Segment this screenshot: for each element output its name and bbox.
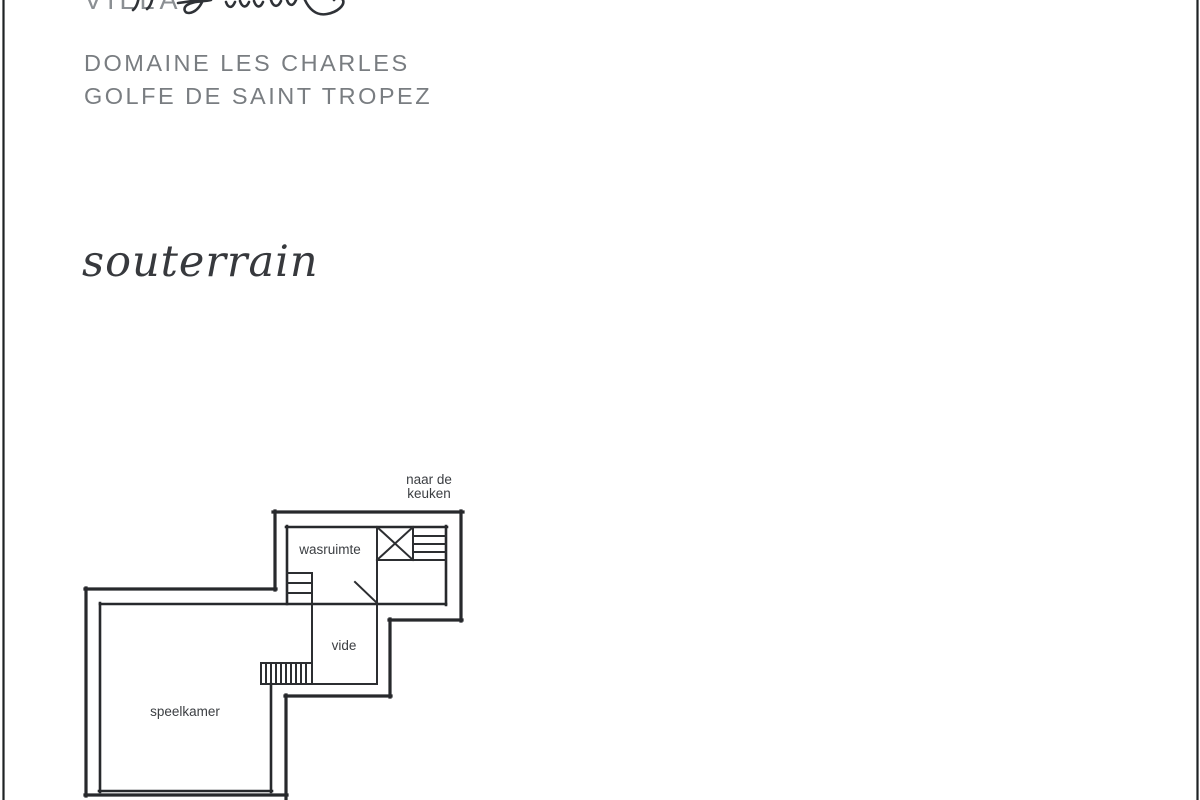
header: VILLA DOMAINE LES CHARLES GOLFE DE SAINT…	[84, 0, 432, 109]
floor-plan: naar de keuken wasruimte vide speelkamer	[85, 472, 463, 800]
floor-title: souterrain	[82, 237, 319, 287]
subtitle-domaine: DOMAINE LES CHARLES	[84, 50, 410, 76]
stair-playroom	[261, 663, 312, 684]
page-borders	[4, 0, 1198, 800]
script-stroke	[287, 0, 296, 5]
script-stroke	[240, 1, 249, 6]
page-canvas: VILLA DOMAINE LES CHARLES GOLFE DE SAINT…	[0, 0, 1200, 800]
room-label-laundry: wasruimte	[298, 542, 361, 557]
stair-laundry	[287, 573, 312, 593]
inner-walls	[99, 526, 447, 792]
villa-prefix: VILLA	[84, 0, 183, 15]
script-stroke	[271, 0, 281, 6]
script-stroke	[254, 1, 263, 6]
brochure-page: VILLA DOMAINE LES CHARLES GOLFE DE SAINT…	[0, 0, 1200, 800]
room-label-playroom: speelkamer	[150, 704, 220, 719]
subtitle-golfe: GOLFE DE SAINT TROPEZ	[84, 83, 432, 109]
script-stroke	[226, 2, 235, 7]
room-label-void: vide	[332, 638, 357, 653]
stair-to-kitchen	[377, 527, 446, 603]
vide-walls	[312, 573, 377, 684]
door-swing	[355, 582, 377, 603]
note-to-kitchen-line1: naar de	[406, 472, 452, 487]
note-to-kitchen-line2: keuken	[407, 486, 451, 501]
script-stroke	[303, 0, 343, 14]
